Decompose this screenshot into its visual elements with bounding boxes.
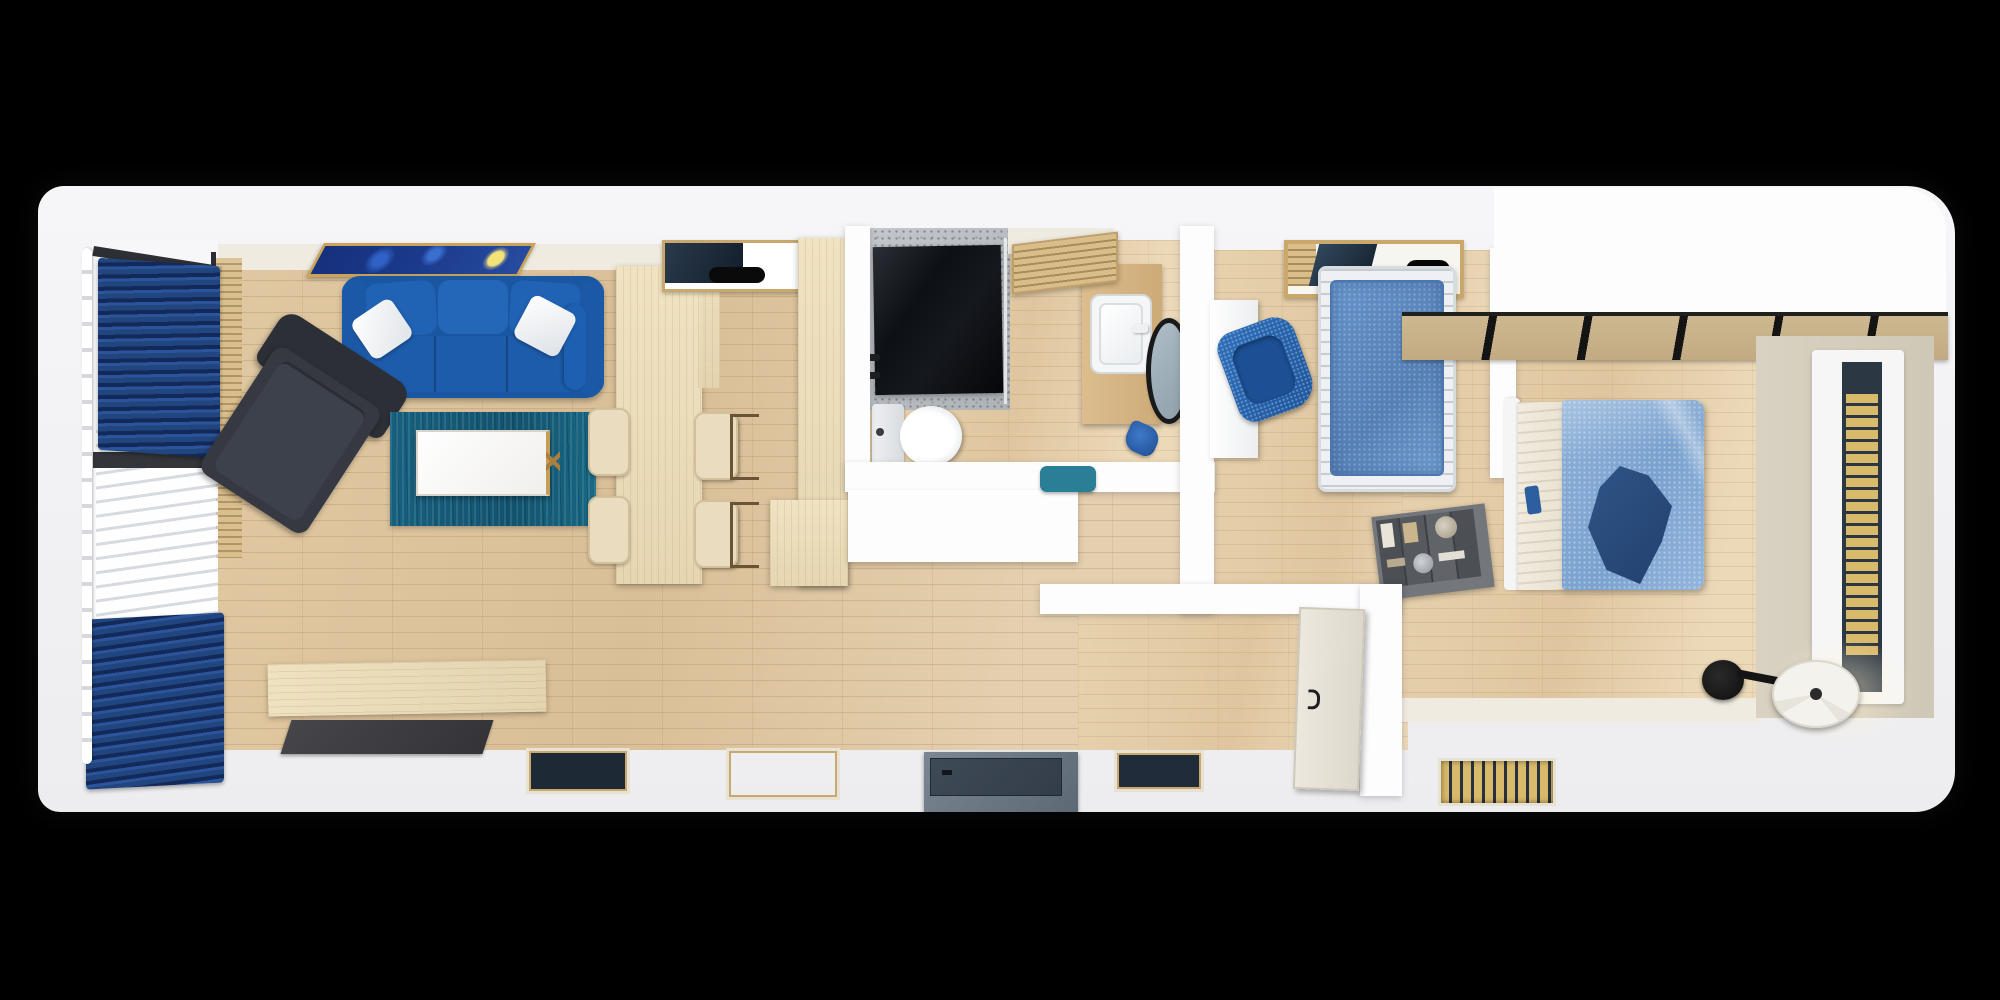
bench bbox=[268, 660, 547, 717]
curtain-rail bbox=[82, 248, 92, 764]
wall-bedroom-entry bbox=[1360, 584, 1402, 796]
doormat bbox=[280, 720, 493, 754]
wall-bathroom-bottom bbox=[845, 462, 1215, 492]
chair-frame bbox=[730, 414, 759, 480]
slat-window bbox=[1846, 394, 1878, 656]
door-handle bbox=[1308, 689, 1321, 709]
wall-bathroom-right bbox=[1180, 226, 1214, 614]
coffee-table-legs bbox=[546, 438, 560, 484]
tall-cabinet-base bbox=[770, 500, 848, 586]
toilet-flush-button bbox=[876, 428, 884, 436]
floor-window-4 bbox=[1438, 758, 1556, 806]
shelf-books bbox=[1402, 522, 1418, 544]
interior-door bbox=[1293, 607, 1365, 791]
faucet bbox=[1132, 324, 1148, 333]
bedroom-bottom-inner-face bbox=[1402, 698, 1760, 722]
floor-lamp-shade bbox=[1772, 660, 1860, 728]
hatch-handle bbox=[942, 770, 952, 775]
coffee-table bbox=[416, 430, 550, 496]
dining-chair bbox=[588, 408, 630, 476]
tray bbox=[1040, 466, 1096, 492]
shower bbox=[873, 245, 1004, 395]
wall-art bbox=[306, 243, 536, 277]
daybed-mattress bbox=[1330, 280, 1444, 476]
floor-window-2 bbox=[726, 748, 840, 800]
toilet-bowl bbox=[900, 406, 962, 466]
bed-duvet bbox=[1562, 400, 1704, 590]
glazed-band-edge bbox=[1402, 312, 1948, 316]
sofa-back-cushion bbox=[438, 280, 508, 334]
wall-bedroom-top bbox=[1494, 188, 1946, 320]
top-window bbox=[662, 240, 806, 292]
curtain-navy-bottom bbox=[86, 612, 224, 789]
floor-window-1 bbox=[526, 748, 630, 794]
lamp-bulb bbox=[1810, 688, 1822, 700]
floor-window-3 bbox=[1114, 750, 1204, 792]
wall-art-canvas bbox=[311, 246, 532, 274]
entry-hatch bbox=[924, 752, 1078, 812]
floor-lamp-base bbox=[1702, 660, 1744, 700]
shower-glass bbox=[1004, 238, 1007, 404]
dining-chair bbox=[588, 496, 630, 564]
floor-plan bbox=[0, 0, 2000, 1000]
console bbox=[848, 490, 1078, 562]
chair-frame bbox=[730, 502, 759, 568]
wall-bathroom-left bbox=[845, 226, 870, 492]
sink bbox=[1090, 294, 1152, 374]
